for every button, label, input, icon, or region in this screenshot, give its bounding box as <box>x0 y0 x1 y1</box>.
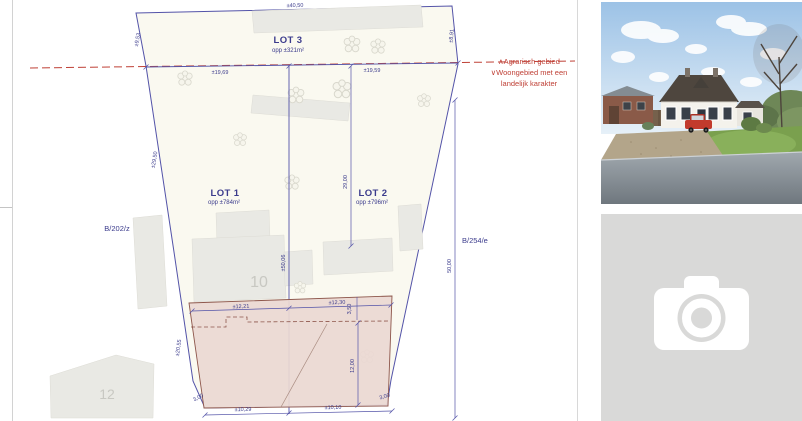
dim-top: ±40,50 <box>287 3 304 9</box>
lot3-area: opp ±321m² <box>272 48 304 54</box>
lot1-label: LOT 1 <box>211 188 240 199</box>
dim-lot2-depth: 29,00 <box>343 175 349 189</box>
lot3-label: LOT 3 <box>274 35 303 46</box>
house-number-10: 10 <box>250 274 268 291</box>
road <box>601 152 802 204</box>
camera-icon <box>654 272 749 352</box>
dim-zone-front-right: ±12,30 <box>328 300 345 307</box>
dim-zone-rear-right: ±10,10 <box>325 405 342 411</box>
building-zone <box>189 296 392 408</box>
dim-edge-left-upper: ±29,50 <box>151 151 160 169</box>
parcel-ref-right: B/254/e <box>462 236 488 245</box>
dim-zone-depth: 12,00 <box>350 359 356 373</box>
listing-media-section: ±40,50 ±19,69 ±19,59 ±9,53 ±8,91 ±29,50 … <box>0 0 802 421</box>
gallery-photo-house[interactable] <box>601 2 802 204</box>
dim-edge-left-lower: ±20,55 <box>175 339 183 356</box>
lot2-area: opp ±796m² <box>356 200 388 206</box>
zoning-label-line1: ∧Agrarisch gebied <box>498 57 560 66</box>
dim-split-left: ±19,69 <box>212 70 229 76</box>
dim-zone-rear-left: ±10,29 <box>235 407 252 413</box>
dim-right-depth: 50,00 <box>447 259 453 273</box>
house-number-12: 12 <box>99 386 115 402</box>
lot2-label: LOT 2 <box>359 188 388 199</box>
dim-edge-top-left: ±9,53 <box>134 32 143 47</box>
site-plan-drawing: ±40,50 ±19,69 ±19,59 ±9,53 ±8,91 ±29,50 … <box>0 0 598 421</box>
lot1-area: opp ±784m² <box>208 200 240 206</box>
house-photo-illustration <box>601 2 802 204</box>
zoning-label-line3: landelijk karakter <box>501 79 558 88</box>
zoning-label-line2: ∨Woongebied met een <box>491 68 568 77</box>
parcel-ref-left: B/202/z <box>104 224 130 233</box>
dim-zone-front-left: ±12,21 <box>232 304 249 311</box>
plan-page[interactable]: ±40,50 ±19,69 ±19,59 ±9,53 ±8,91 ±29,50 … <box>0 0 598 421</box>
dim-zone-strip-depth: 3,50 <box>347 304 353 315</box>
dim-divider-length: ±50,06 <box>281 255 287 272</box>
dim-split-right: ±19,59 <box>364 68 381 74</box>
gallery-photo-placeholder[interactable] <box>601 214 802 421</box>
